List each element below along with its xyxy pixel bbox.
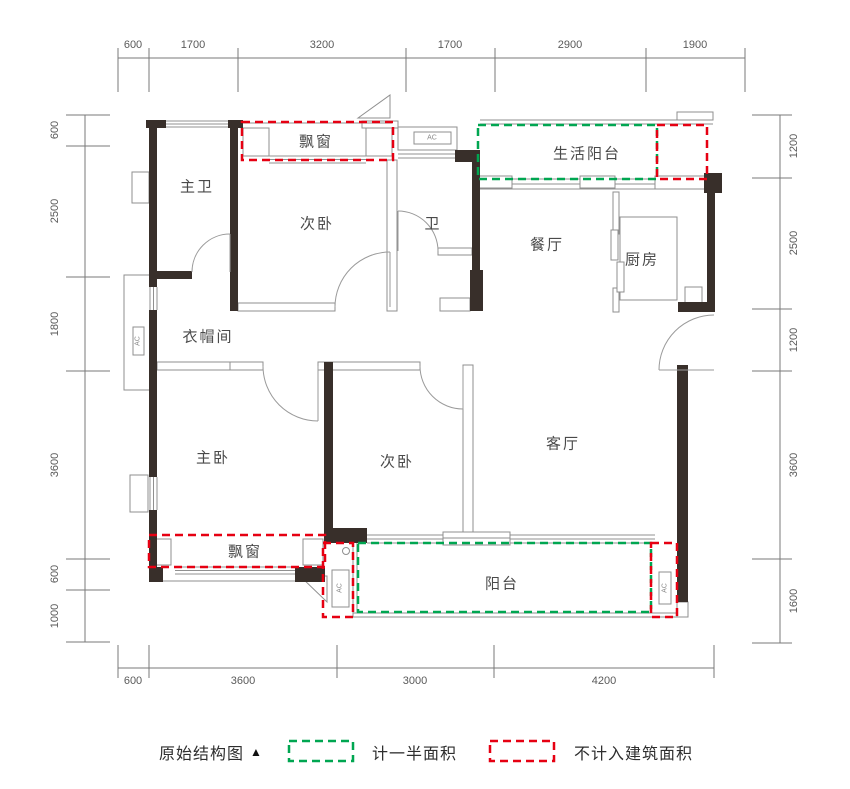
room-label-bedroom-top: 次卧 <box>300 213 334 234</box>
dim-top-5: 1900 <box>683 39 707 51</box>
dim-top-4: 2900 <box>558 39 582 51</box>
dim-bottom-0: 600 <box>124 675 142 687</box>
dim-left-0: 600 <box>49 121 61 139</box>
ac-unit-label-top: AC <box>427 135 437 142</box>
room-label-dining: 餐厅 <box>530 234 564 255</box>
doors-layer <box>192 211 714 421</box>
room-label-bedroom-bottom: 次卧 <box>380 451 414 472</box>
dim-left-1: 2500 <box>49 199 61 223</box>
dim-left-2: 1800 <box>49 312 61 336</box>
room-label-balcony: 阳台 <box>485 573 519 594</box>
legend-title: 原始结构图 <box>159 740 244 764</box>
room-label-bay-window-top: 飘窗 <box>299 131 333 152</box>
ac-unit-label-balcony-right: AC <box>662 583 669 593</box>
ac-unit-label-balcony-left: AC <box>337 583 344 593</box>
ac-unit-label-left: AC <box>135 336 142 346</box>
dim-left-3: 3600 <box>49 453 61 477</box>
dim-right-0: 1200 <box>788 134 800 158</box>
dim-bottom-2: 3000 <box>403 675 427 687</box>
room-label-kitchen: 厨房 <box>625 249 659 270</box>
legend-red-swatch <box>490 741 554 761</box>
ledges-layer <box>443 176 705 545</box>
dim-top-3: 1700 <box>438 39 462 51</box>
room-label-bath: 卫 <box>424 213 441 234</box>
room-label-living: 客厅 <box>546 433 580 454</box>
dim-top-2: 3200 <box>310 39 334 51</box>
legend-excluded-area-label: 不计入建筑面积 <box>574 740 693 764</box>
legend-green-swatch <box>289 741 353 761</box>
dim-right-2: 1200 <box>788 328 800 352</box>
room-label-service-balcony: 生活阳台 <box>553 143 621 164</box>
dim-right-1: 2500 <box>788 231 800 255</box>
room-label-cloakroom: 衣帽间 <box>182 326 233 347</box>
room-label-bay-window-bottom: 飘窗 <box>228 541 262 562</box>
dim-top-0: 600 <box>124 39 142 51</box>
floor-plan-canvas: 主卫 次卧 飘窗 卫 餐厅 厨房 生活阳台 衣帽间 主卧 次卧 客厅 阳台 飘窗… <box>0 0 850 789</box>
dim-bottom-3: 4200 <box>592 675 616 687</box>
thick-walls-layer <box>146 120 722 602</box>
up-triangle-marker: ▲ <box>250 745 262 759</box>
dim-left-4: 600 <box>49 565 61 583</box>
dim-right-4: 1600 <box>788 589 800 613</box>
floor-plan-drawing <box>0 0 850 789</box>
room-label-master-bedroom: 主卧 <box>196 447 230 468</box>
legend-half-area-label: 计一半面积 <box>372 740 457 764</box>
dim-bottom-1: 3600 <box>231 675 255 687</box>
room-label-master-bath: 主卫 <box>180 176 214 197</box>
dim-left-5: 1000 <box>49 604 61 628</box>
dim-top-1: 1700 <box>181 39 205 51</box>
dim-right-3: 3600 <box>788 453 800 477</box>
